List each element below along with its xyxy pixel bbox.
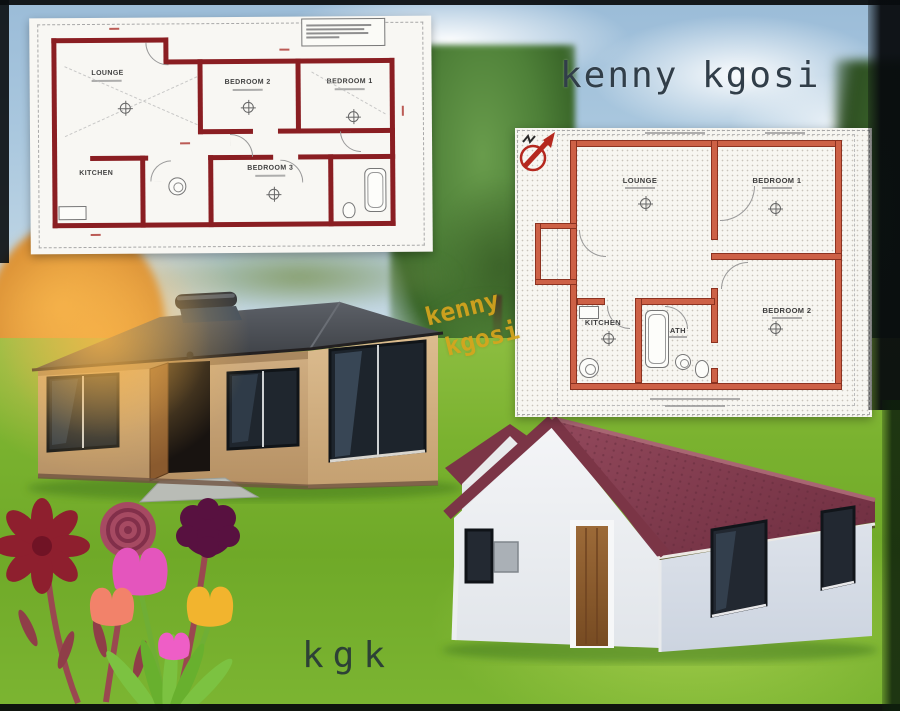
door-opening xyxy=(168,361,210,473)
room-label-kitchen: KITCHEN xyxy=(56,170,136,179)
room-label-bedroom2: BEDROOM 2 xyxy=(747,306,827,315)
wall-lamp xyxy=(187,352,194,359)
dimension-tick xyxy=(180,142,190,144)
room-label-bedroom2: BEDROOM 2 xyxy=(208,79,288,88)
dimension-tick xyxy=(91,234,101,236)
wall xyxy=(328,154,334,226)
illegible-text-line xyxy=(765,132,805,134)
window-small xyxy=(466,530,492,582)
wall xyxy=(278,128,395,134)
illegible-text-line xyxy=(665,405,725,407)
daisy-flower xyxy=(0,498,90,594)
light-fixture-icon xyxy=(770,203,781,214)
dimension-tick xyxy=(402,106,404,116)
flower-clipart xyxy=(0,488,255,711)
title-text: kenny kgosi xyxy=(560,58,870,94)
solar-panel xyxy=(180,306,242,323)
wall xyxy=(208,155,214,227)
wall-entry-porch xyxy=(535,279,577,285)
collage-canvas: LOUNGE BEDROOM 2 BEDROOM 1 KITCHEN BEDRO… xyxy=(0,0,900,711)
wall-entry-porch xyxy=(535,223,577,229)
signature-text: kgk xyxy=(302,638,394,674)
illegible-text-line xyxy=(306,36,339,38)
wall xyxy=(295,59,301,134)
basin-icon xyxy=(675,354,691,370)
room-sublabel xyxy=(625,187,655,189)
spec-note-box xyxy=(301,18,385,47)
light-fixture-icon xyxy=(268,189,279,200)
north-arrow-icon xyxy=(517,128,563,174)
room-label-lounge: LOUNGE xyxy=(600,176,680,185)
front-door xyxy=(576,526,608,646)
house-render-right xyxy=(420,400,880,665)
dimension-tick xyxy=(279,49,289,51)
wall xyxy=(711,368,718,383)
illegible-text-line xyxy=(306,28,364,30)
geyser-icon xyxy=(168,177,186,195)
wall xyxy=(198,129,253,134)
carnation-flower xyxy=(176,498,240,558)
light-fixture-icon xyxy=(640,198,651,209)
bathtub-icon xyxy=(364,168,386,212)
illegible-text-line xyxy=(306,24,371,26)
room-sublabel xyxy=(762,187,792,189)
wall xyxy=(570,383,842,390)
light-fixture-icon xyxy=(120,103,131,114)
room-sublabel xyxy=(233,89,263,91)
stove-icon xyxy=(579,306,599,319)
illegible-text-line xyxy=(650,398,740,400)
door-leaf-open xyxy=(150,363,168,481)
wall xyxy=(140,156,146,228)
light-fixture-icon xyxy=(770,323,781,334)
wall xyxy=(711,253,842,260)
room-label-bedroom1: BEDROOM 1 xyxy=(737,176,817,185)
light-fixture-icon xyxy=(348,111,359,122)
floorplan-right: LOUNGE BEDROOM 1 KITCHEN BATH BEDROOM 2 xyxy=(515,128,872,417)
tulip-yellow xyxy=(187,587,233,627)
floorplan-left: LOUNGE BEDROOM 2 BEDROOM 1 KITCHEN BEDRO… xyxy=(29,16,433,255)
wall xyxy=(577,298,605,305)
toilet-icon xyxy=(695,360,709,378)
room-label-bedroom1: BEDROOM 1 xyxy=(310,78,390,87)
meter-box xyxy=(494,542,518,572)
wall xyxy=(635,298,642,383)
wall xyxy=(298,154,395,160)
wall xyxy=(711,140,718,240)
bathtub-icon xyxy=(645,310,669,368)
flower-leaf xyxy=(15,608,41,648)
illegible-text-line xyxy=(645,132,705,134)
wall xyxy=(835,140,842,390)
window xyxy=(822,507,854,589)
kitchen-counter-icon xyxy=(58,206,86,220)
house-render-left xyxy=(10,275,460,505)
tulip-coral xyxy=(90,588,134,626)
toilet-icon xyxy=(342,202,355,218)
room-sublabel xyxy=(772,317,802,319)
dimension-tick xyxy=(109,28,119,30)
wall xyxy=(635,298,715,305)
geyser-icon xyxy=(579,358,599,378)
wall xyxy=(570,140,842,147)
wall xyxy=(197,59,203,134)
wall xyxy=(570,140,577,390)
illegible-text-line xyxy=(306,32,368,34)
room-label-kitchen: KITCHEN xyxy=(563,318,643,327)
light-fixture-icon xyxy=(243,102,254,113)
light-fixture-icon xyxy=(603,333,614,344)
